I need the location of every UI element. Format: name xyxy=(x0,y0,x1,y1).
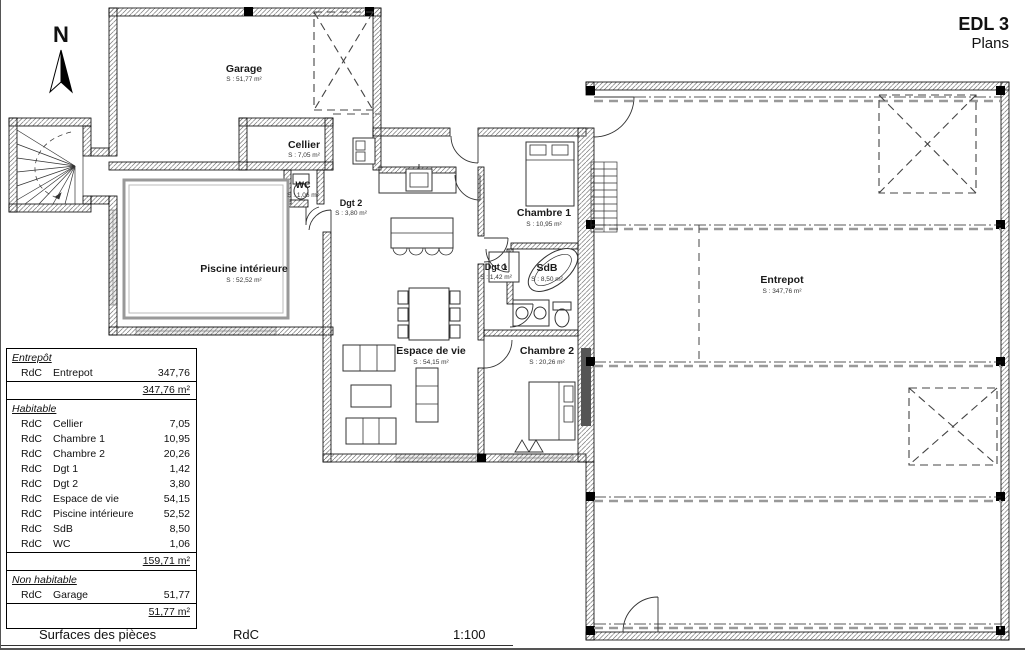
row-value: 1,06 xyxy=(142,537,196,552)
north-arrow-icon xyxy=(41,48,81,96)
row-room: Piscine intérieure xyxy=(53,507,142,522)
row-room: Dgt 2 xyxy=(53,477,142,492)
piscine-area: S : 52,52 m² xyxy=(226,277,262,284)
table-row: RdC Piscine intérieure 52,52 xyxy=(7,507,196,522)
dining-table xyxy=(398,288,460,340)
row-value: 8,50 xyxy=(142,522,196,537)
dgt2-area: S : 3,80 m² xyxy=(335,210,368,217)
row-value: 347,76 xyxy=(142,366,196,381)
row-room: Cellier xyxy=(53,417,142,432)
row-level: RdC xyxy=(7,432,53,447)
row-room: Chambre 2 xyxy=(53,447,142,462)
footer: Surfaces des pièces RdC 1:100 xyxy=(1,626,513,645)
garage-label: Garage xyxy=(226,63,262,75)
bedroom1-bed xyxy=(526,142,574,206)
espace-label: Espace de vie xyxy=(396,345,466,357)
section-header: Habitable xyxy=(7,400,196,417)
row-value: 7,05 xyxy=(142,417,196,432)
kitchen xyxy=(379,164,456,255)
espace-area: S : 54,15 m² xyxy=(413,359,449,366)
row-room: Dgt 1 xyxy=(53,462,142,477)
row-level: RdC xyxy=(7,366,53,381)
row-value: 10,95 xyxy=(142,432,196,447)
row-level: RdC xyxy=(7,477,53,492)
table-row: RdC Entrepot 347,76 xyxy=(7,366,196,381)
row-level: RdC xyxy=(7,417,53,432)
surface-table: Entrepôt RdC Entrepot 347,76 347,76 m² H… xyxy=(6,348,197,629)
table-row: RdC Dgt 2 3,80 xyxy=(7,477,196,492)
row-room: Chambre 1 xyxy=(53,432,142,447)
title-block: EDL 3 Plans xyxy=(958,14,1009,52)
section-total: 347,76 m² xyxy=(7,381,196,400)
plan-sheet: Garage S : 51,77 m² Cellier S : 7,05 m² … xyxy=(0,0,1025,650)
section-header: Entrepôt xyxy=(7,349,196,366)
row-level: RdC xyxy=(7,522,53,537)
table-row: RdC SdB 8,50 xyxy=(7,522,196,537)
chambre2-label: Chambre 2 xyxy=(520,345,574,357)
pool xyxy=(124,180,288,318)
section-total: 51,77 m² xyxy=(7,603,196,621)
footer-scale: 1:100 xyxy=(453,627,486,642)
row-room: Garage xyxy=(53,588,142,603)
table-row: RdC Chambre 1 10,95 xyxy=(7,432,196,447)
cellier-label: Cellier xyxy=(288,139,320,151)
dgt1-area: S : 1,42 m² xyxy=(480,274,513,281)
row-level: RdC xyxy=(7,462,53,477)
row-level: RdC xyxy=(7,447,53,462)
row-value: 54,15 xyxy=(142,492,196,507)
entrepot-label: Entrepot xyxy=(760,274,804,286)
table-row: RdC WC 1,06 xyxy=(7,537,196,552)
footer-caption: Surfaces des pièces xyxy=(39,627,156,642)
table-row: RdC Chambre 2 20,26 xyxy=(7,447,196,462)
page-subtitle: Plans xyxy=(958,35,1009,52)
sdb-label: SdB xyxy=(537,262,558,274)
row-value: 20,26 xyxy=(142,447,196,462)
chambre1-label: Chambre 1 xyxy=(517,207,571,219)
cellier-area: S : 7,05 m² xyxy=(288,152,321,159)
row-value: 52,52 xyxy=(142,507,196,522)
row-value: 3,80 xyxy=(142,477,196,492)
table-row: RdC Garage 51,77 xyxy=(7,588,196,603)
table-row: RdC Dgt 1 1,42 xyxy=(7,462,196,477)
row-room: SdB xyxy=(53,522,142,537)
wc-area: S : 1,06 m² xyxy=(287,192,320,199)
spiral-staircase xyxy=(17,126,83,204)
row-value: 1,42 xyxy=(142,462,196,477)
table-row: RdC Cellier 7,05 xyxy=(7,417,196,432)
page-title: EDL 3 xyxy=(958,14,1009,35)
footer-rule xyxy=(1,645,513,646)
chambre1-area: S : 10,95 m² xyxy=(526,221,562,228)
footer-level: RdC xyxy=(233,627,259,642)
section-total: 159,71 m² xyxy=(7,552,196,571)
row-level: RdC xyxy=(7,507,53,522)
row-room: Entrepot xyxy=(53,366,142,381)
row-room: Espace de vie xyxy=(53,492,142,507)
row-level: RdC xyxy=(7,492,53,507)
sdb-area: S : 8,50 m² xyxy=(531,276,564,283)
row-level: RdC xyxy=(7,588,53,603)
wc-label: WC xyxy=(296,180,311,190)
north-arrow: N xyxy=(41,22,81,101)
table-row: RdC Espace de vie 54,15 xyxy=(7,492,196,507)
row-value: 51,77 xyxy=(142,588,196,603)
section-header: Non habitable xyxy=(7,571,196,588)
chambre2-area: S : 20,26 m² xyxy=(529,359,565,366)
north-label: N xyxy=(41,22,81,48)
dgt1-label: Dgt 1 xyxy=(485,262,508,272)
piscine-label: Piscine intérieure xyxy=(200,263,288,275)
row-level: RdC xyxy=(7,537,53,552)
entrepot-area: S : 347,76 m² xyxy=(762,288,802,295)
room-labels: Garage S : 51,77 m² Cellier S : 7,05 m² … xyxy=(200,63,804,366)
dgt2-label: Dgt 2 xyxy=(340,198,363,208)
row-room: WC xyxy=(53,537,142,552)
garage-area: S : 51,77 m² xyxy=(226,76,262,83)
bathroom-fixtures xyxy=(489,240,585,327)
bedroom2-bed xyxy=(515,382,575,452)
